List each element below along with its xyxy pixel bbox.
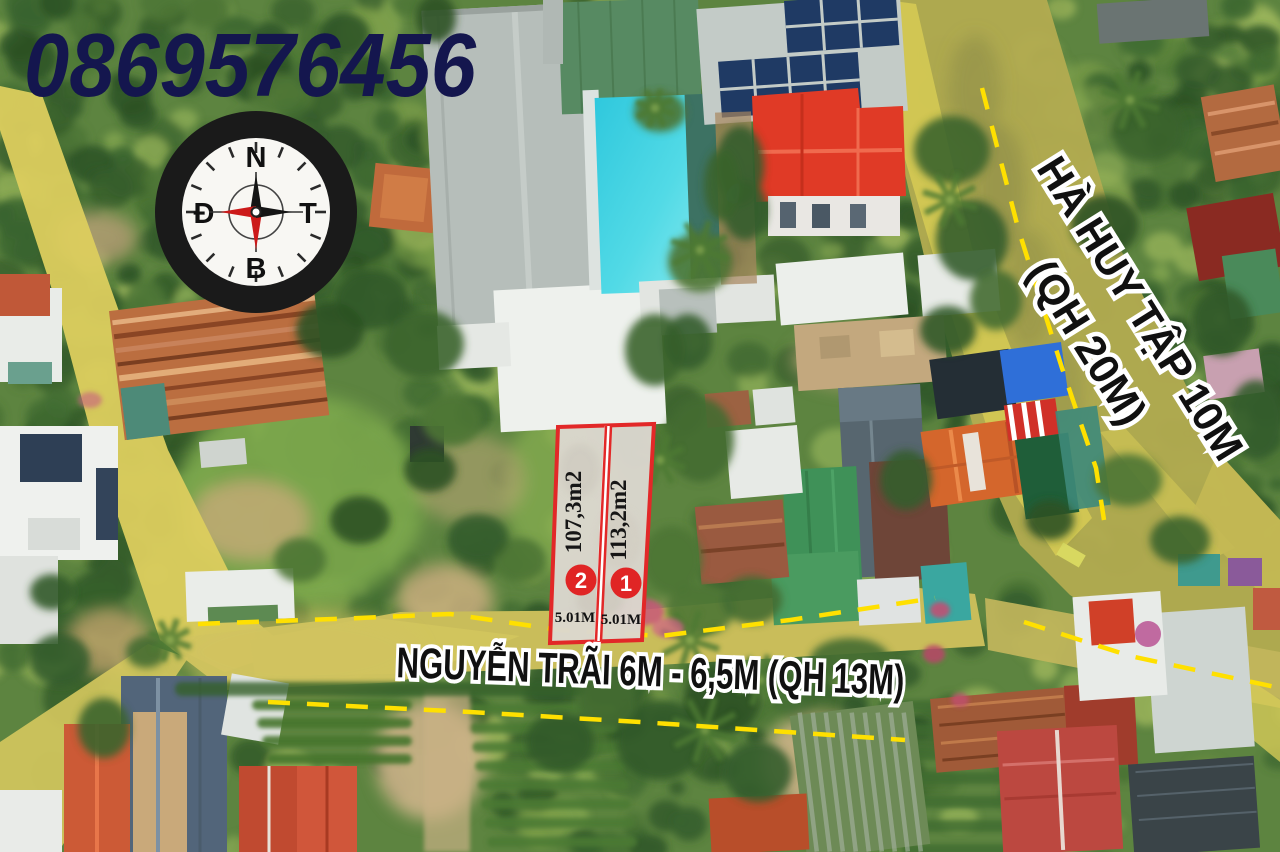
svg-text:T: T <box>299 198 317 230</box>
svg-text:1: 1 <box>620 571 632 596</box>
svg-text:Đ: Đ <box>194 198 215 230</box>
svg-text:113,2m2: 113,2m2 <box>606 479 631 560</box>
svg-text:B: B <box>246 253 267 285</box>
svg-text:2: 2 <box>575 568 587 593</box>
svg-text:5.01M: 5.01M <box>601 612 641 628</box>
svg-text:5.01M: 5.01M <box>555 610 595 626</box>
svg-text:N: N <box>246 142 267 174</box>
svg-text:0869576456: 0869576456 <box>24 16 477 116</box>
svg-text:107,3m2: 107,3m2 <box>561 471 586 553</box>
